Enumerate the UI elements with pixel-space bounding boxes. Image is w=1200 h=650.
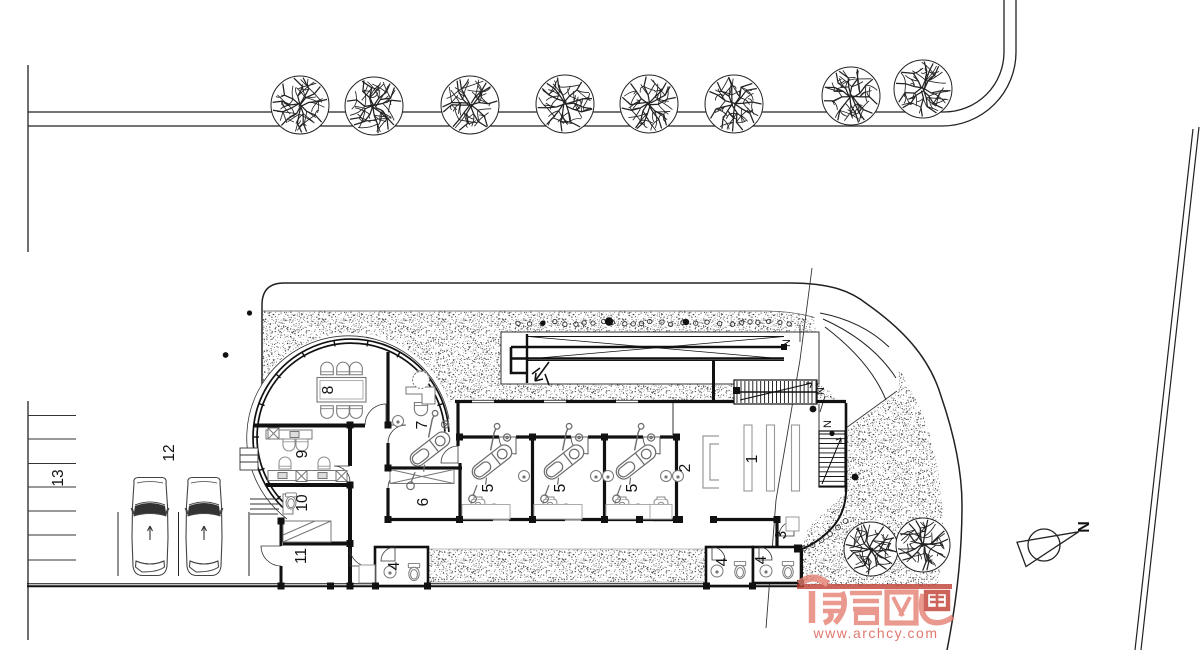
svg-text:3: 3 <box>773 531 790 540</box>
svg-text:www.archcy.com: www.archcy.com <box>813 625 939 641</box>
svg-text:7: 7 <box>414 421 431 430</box>
svg-text:1: 1 <box>744 455 761 464</box>
svg-text:10: 10 <box>294 494 311 512</box>
svg-text:4: 4 <box>714 557 731 566</box>
svg-text:N: N <box>822 420 834 428</box>
svg-text:13: 13 <box>50 469 67 486</box>
svg-text:N: N <box>1076 521 1093 533</box>
svg-text:12: 12 <box>161 444 178 461</box>
svg-text:4: 4 <box>386 561 403 570</box>
svg-text:6: 6 <box>415 498 432 507</box>
svg-text:5: 5 <box>480 484 497 493</box>
svg-text:5: 5 <box>552 484 569 493</box>
svg-text:9: 9 <box>294 450 311 459</box>
svg-text:4: 4 <box>753 555 770 564</box>
svg-text:8: 8 <box>320 386 337 395</box>
svg-text:11: 11 <box>293 548 310 564</box>
svg-text:N: N <box>781 339 793 347</box>
svg-text:N: N <box>815 387 827 395</box>
svg-text:2: 2 <box>677 464 694 473</box>
svg-text:5: 5 <box>624 484 641 493</box>
